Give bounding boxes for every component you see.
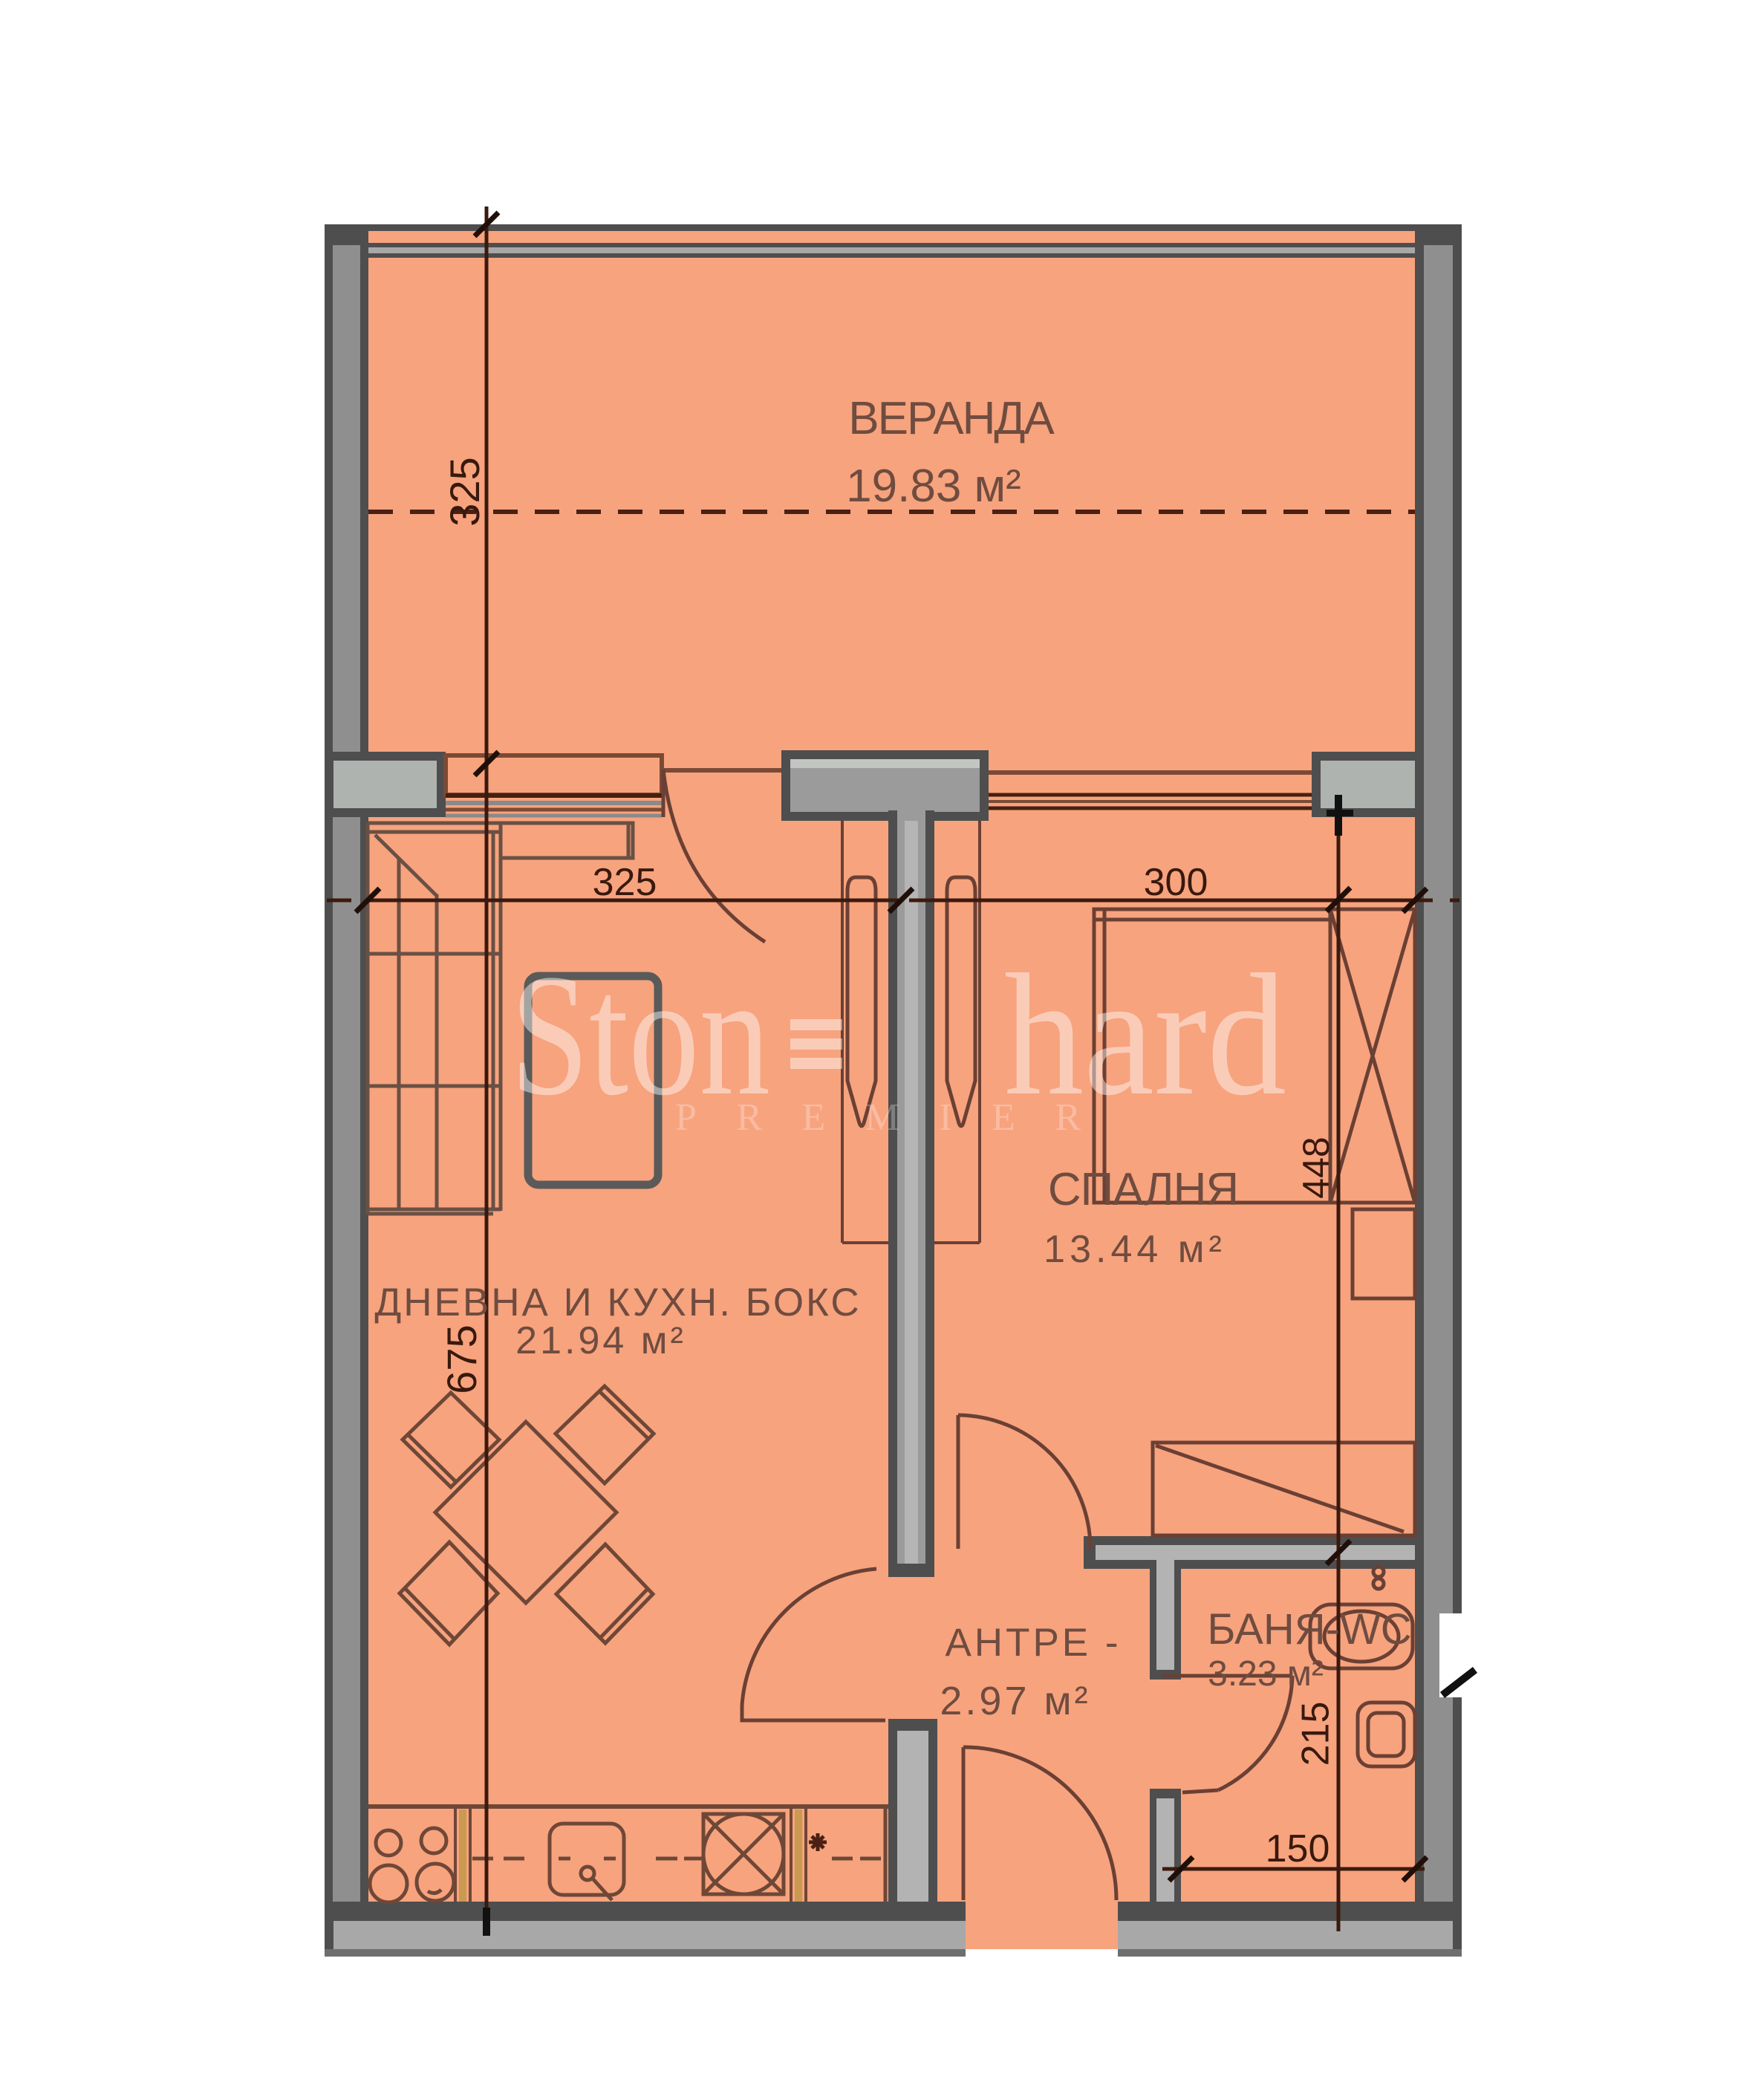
svg-text:325: 325 [593,861,657,904]
svg-text:13.44 м²: 13.44 м² [1044,1228,1226,1271]
svg-text:675: 675 [438,1324,485,1394]
svg-text:2.97 м²: 2.97 м² [940,1679,1090,1723]
svg-text:hard: hard [1004,938,1286,1131]
svg-text:215: 215 [1295,1702,1338,1766]
svg-text:19.83 м²: 19.83 м² [846,461,1021,512]
svg-text:Ston: Ston [510,938,770,1131]
svg-text:325: 325 [441,457,488,526]
svg-text:3.23 м²: 3.23 м² [1208,1654,1324,1694]
svg-text:448: 448 [1295,1137,1337,1198]
svg-text:ВЕРАНДА: ВЕРАНДА [848,393,1055,444]
svg-text:150: 150 [1266,1827,1330,1870]
svg-text:СПАЛНЯ: СПАЛНЯ [1048,1164,1238,1215]
svg-text:300: 300 [1144,861,1208,904]
svg-text:АНТРЕ -: АНТРЕ - [945,1621,1121,1665]
svg-text:ДНЕВНА И КУХН. БОКС: ДНЕВНА И КУХН. БОКС [374,1281,861,1324]
svg-text:21.94 м²: 21.94 м² [515,1319,686,1362]
svg-text:БАНЯ-WC: БАНЯ-WC [1207,1605,1411,1654]
